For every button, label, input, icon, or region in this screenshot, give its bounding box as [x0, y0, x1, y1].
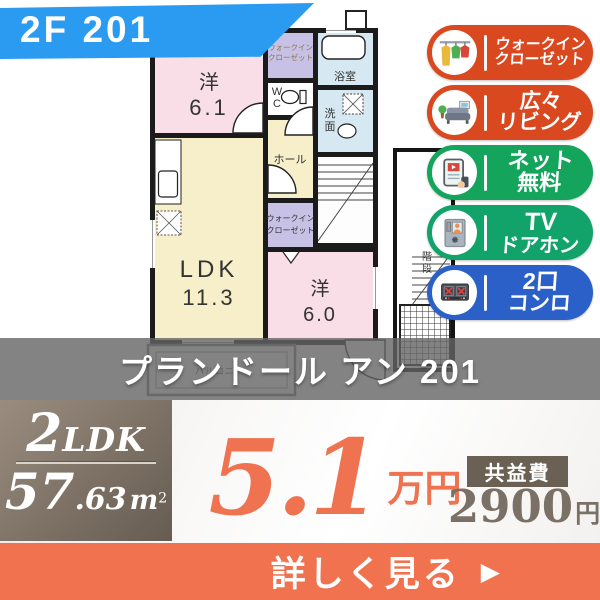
sink	[338, 124, 356, 138]
bedroom1-label: 洋	[199, 71, 219, 94]
vent	[346, 11, 366, 29]
spec-box: 2LDK 57.63m2	[0, 400, 172, 541]
wc-label-1: W	[272, 86, 283, 98]
feature-badges: ウォークイン クローゼット 広々 リビング	[427, 25, 593, 320]
stove-icon	[432, 270, 477, 315]
badge-separator	[484, 95, 487, 131]
badge-label-line2: 無料	[491, 173, 587, 195]
ldk-label: LDK	[180, 256, 239, 283]
area-unit: m	[130, 485, 159, 516]
details-button-label[interactable]: 詳しく見る	[271, 546, 461, 597]
badge-walk-in-closet: ウォークイン クローゼット	[427, 25, 593, 80]
badge-label-line2: コンロ	[491, 294, 586, 315]
doorphone-icon	[432, 210, 477, 255]
badge-free-internet: ネット 無料	[427, 145, 593, 200]
wic-top-label-1: ウォークイン	[268, 43, 313, 52]
rent-value: 5.1	[209, 434, 378, 540]
wash-label-1: 洗	[325, 107, 336, 120]
wash-label-2: 面	[325, 121, 336, 133]
badge-label-line1: 2口	[493, 270, 589, 293]
layout-type: 2LDK	[0, 408, 172, 460]
area-integer: 57	[5, 462, 75, 521]
hall-label: ホール	[274, 153, 307, 166]
badge-label-line2: クローゼット	[492, 53, 587, 68]
badge-tv-doorphone: TV ドアホン	[427, 205, 593, 260]
ldk-size: 11.3	[182, 285, 235, 310]
floor-area: 57.63m2	[0, 467, 172, 517]
area-unit-exponent: 2	[158, 491, 167, 507]
wic-top-label-2: クローゼット	[268, 52, 313, 62]
listing-card: 洋 6.1 LDK 11.3 洋 6.0 ウォークイン クローゼット ウォークイ…	[0, 0, 600, 600]
common-fee-value: 2900 円	[448, 484, 600, 532]
toilet	[282, 91, 299, 104]
details-arrow-icon: ▶	[481, 557, 500, 587]
bedroom2-label: 洋	[310, 278, 329, 300]
bathtub	[322, 36, 365, 59]
wc-label-2: C	[273, 98, 281, 110]
badge-label-line1: ネット	[493, 150, 589, 172]
rent-price: 5.1 万円	[200, 402, 470, 540]
bath-label: 浴室	[334, 69, 356, 83]
badge-separator	[484, 215, 487, 251]
badge-two-burner-stove: 2口 コンロ	[427, 265, 593, 320]
bedroom1-size: 6.1	[189, 95, 229, 120]
badge-spacious-living: 広々 リビング	[427, 85, 593, 140]
unit-number: 2F 201	[0, 9, 153, 53]
sofa-icon	[432, 90, 477, 135]
fee-amount: 2900	[448, 484, 573, 529]
badge-label-line2: ドアホン	[491, 235, 586, 255]
badge-label-line2: リビング	[492, 113, 587, 134]
closet-icon	[432, 30, 477, 75]
area-decimal: .63	[74, 482, 126, 517]
bedroom2-size: 6.0	[303, 304, 337, 326]
details-button[interactable]: 詳しく見る ▶	[0, 543, 600, 600]
wic-mid-label-1: ウォークイン	[267, 214, 315, 223]
layout-rooms-type: LDK	[62, 420, 146, 459]
wic-mid-label-2: クローゼット	[267, 225, 315, 235]
property-name: プランドール アン 201	[119, 345, 481, 393]
badge-label-line1: TV	[493, 210, 589, 236]
badge-label-line1: 広々	[493, 91, 588, 112]
badge-separator	[484, 275, 487, 311]
badge-separator	[484, 35, 487, 71]
badge-separator	[484, 155, 487, 191]
room-wic-mid	[268, 203, 313, 247]
property-name-band: プランドール アン 201	[0, 338, 600, 400]
fee-unit: 円	[575, 494, 600, 530]
net-tablet-icon	[432, 150, 477, 195]
layout-rooms-count: 2	[26, 403, 62, 464]
